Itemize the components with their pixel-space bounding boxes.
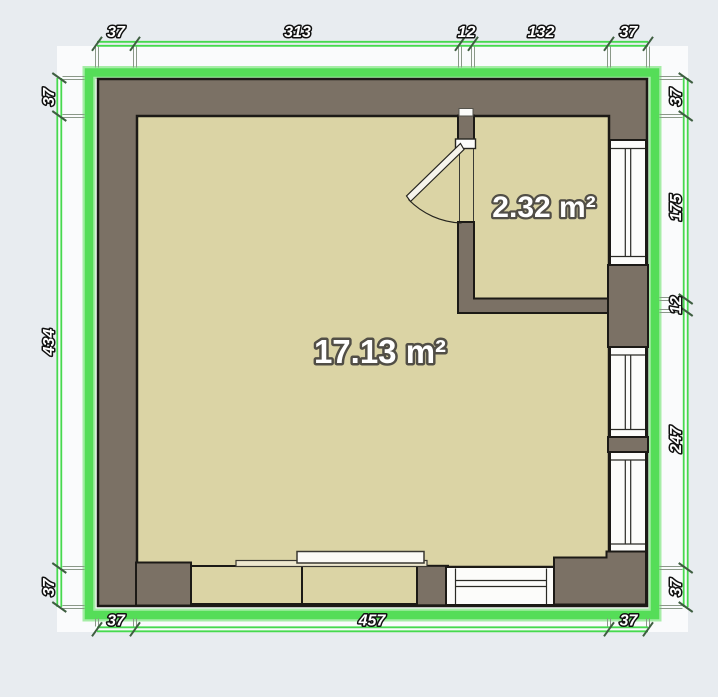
dimension-label[interactable]: 132 [528, 24, 555, 41]
window-right-2[interactable] [610, 347, 646, 437]
dimension-label[interactable]: 37 [41, 578, 58, 597]
dimension-label[interactable]: 313 [284, 24, 311, 41]
window-frame[interactable] [610, 140, 646, 265]
wall-joint-gap [459, 109, 473, 117]
windows-right-wall[interactable] [608, 140, 648, 552]
dimension-label[interactable]: 12 [668, 296, 685, 314]
bottom-wall-section-right[interactable] [302, 566, 419, 604]
dimension-label[interactable]: 247 [668, 425, 685, 454]
dimension-label[interactable]: 37 [668, 87, 685, 106]
floor-plan-editor-canvas: 37 313 12 132 37 37 457 37 37 434 37 37 … [0, 0, 718, 697]
dimension-label[interactable]: 434 [41, 329, 58, 357]
window-bottom-wall[interactable] [446, 567, 556, 605]
dimension-label[interactable]: 37 [668, 578, 685, 597]
corner-block-bottom-left[interactable] [136, 563, 191, 606]
dimension-label[interactable]: 175 [668, 193, 685, 221]
dimension-label[interactable]: 37 [41, 87, 58, 106]
room-area-label-main[interactable]: 17.13 m² [314, 333, 446, 370]
sideboard[interactable] [297, 552, 424, 564]
room-area-label-small[interactable]: 2.32 m² [492, 191, 595, 224]
right-wall-mullion[interactable] [608, 437, 648, 452]
dimension-label[interactable]: 457 [358, 613, 387, 630]
window-right-1[interactable] [610, 140, 646, 265]
window-frame[interactable] [610, 452, 646, 552]
partition-wall-stub[interactable] [458, 116, 474, 142]
window-right-3[interactable] [610, 452, 646, 552]
window-frame[interactable] [610, 347, 646, 437]
right-wall-block[interactable] [608, 265, 648, 347]
floor-plan-drawing: 37 313 12 132 37 37 457 37 37 434 37 37 … [0, 0, 718, 697]
dimension-label[interactable]: 12 [458, 24, 476, 41]
dimension-label[interactable]: 37 [620, 24, 639, 41]
dimension-label[interactable]: 37 [107, 24, 126, 41]
bottom-wall-section-left[interactable] [190, 566, 304, 604]
corner-block-bottom-right[interactable] [554, 552, 646, 605]
dimension-label[interactable]: 37 [107, 613, 126, 630]
dimension-label[interactable]: 37 [620, 613, 639, 630]
bottom-wall-pier[interactable] [417, 566, 448, 606]
